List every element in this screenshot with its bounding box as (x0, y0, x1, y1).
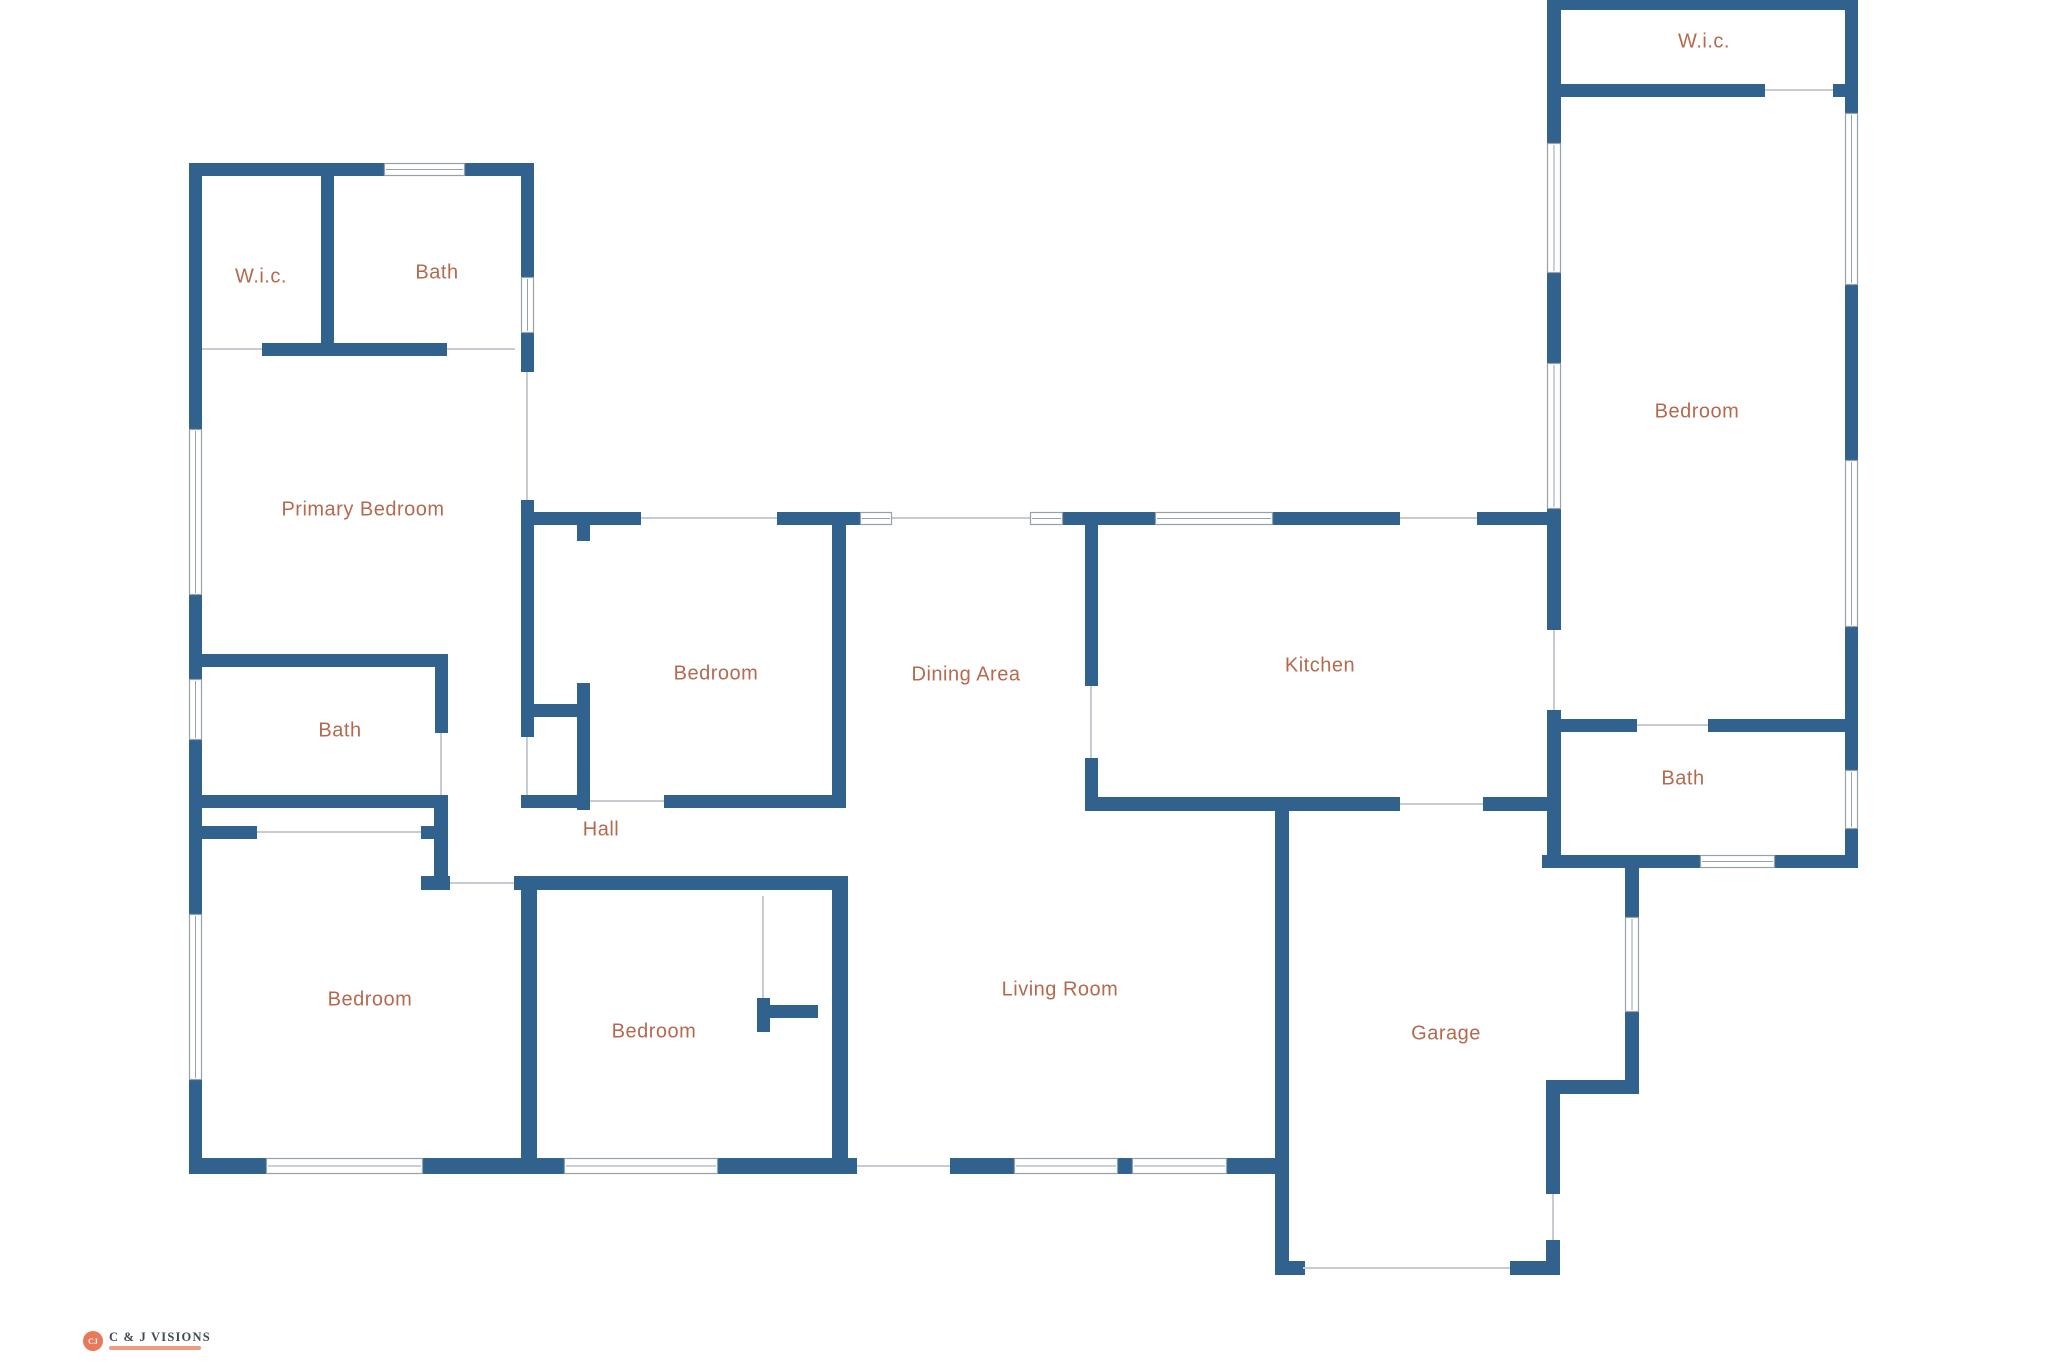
window (1156, 513, 1273, 525)
window (190, 915, 202, 1080)
wall-segment (1547, 509, 1561, 630)
wall-segment (1546, 1094, 1560, 1194)
wall-segment (202, 654, 448, 667)
logo-tagline-strip (109, 1346, 201, 1350)
floorplan-page: W.i.c.BathPrimary BedroomBathHallBedroom… (0, 0, 2048, 1365)
wall-segment (521, 876, 537, 1174)
window (1846, 771, 1858, 829)
wall-segment (1845, 285, 1858, 460)
room-label-primary-bedroom: Primary Bedroom (281, 498, 444, 520)
floorplan-canvas: W.i.c.BathPrimary BedroomBathHallBedroom… (0, 0, 2048, 1365)
logo-mark-icon: CJ (83, 1331, 103, 1351)
wall-segment (757, 998, 770, 1032)
wall-segment (664, 795, 846, 808)
window (1626, 918, 1639, 1012)
wall-segment (770, 1005, 818, 1018)
wall-segment (1289, 1261, 1305, 1275)
wall-segment (1063, 512, 1155, 525)
wall-segment (189, 595, 202, 679)
room-label-hall: Hall (583, 818, 619, 840)
wall-segment (718, 1158, 857, 1174)
window (1031, 513, 1063, 525)
wall-segment (1546, 1240, 1560, 1261)
window (1701, 856, 1775, 868)
wall-segment (832, 525, 846, 808)
wall-segment (1085, 525, 1098, 686)
window (267, 1159, 423, 1174)
wall-segment (1625, 868, 1639, 917)
wall-segment (1547, 0, 1858, 10)
wall-segment (434, 795, 448, 876)
window (1548, 364, 1561, 509)
window (190, 430, 202, 595)
logo-text: C & J VISIONS (109, 1331, 211, 1344)
window (190, 680, 202, 740)
wall-segment (1547, 710, 1561, 868)
wall-segment (435, 667, 448, 733)
wall-segment (421, 876, 450, 890)
wall-segment (189, 163, 384, 176)
room-label-kitchen: Kitchen (1285, 654, 1355, 676)
room-label-dining-area: Dining Area (912, 663, 1021, 685)
wall-segment (1547, 0, 1561, 143)
wall-segment (832, 876, 848, 1174)
wall-segment (321, 176, 334, 343)
wall-segment (534, 704, 577, 717)
wall-segment (262, 343, 447, 356)
room-label-bath-left: Bath (318, 719, 361, 741)
room-label-garage: Garage (1411, 1022, 1481, 1044)
room-label-bedroom-bottom-mid: Bedroom (612, 1020, 697, 1042)
floorplan-svg: W.i.c.BathPrimary BedroomBathHallBedroom… (0, 0, 2048, 1365)
wall-segment (1561, 719, 1637, 732)
wall-segment (521, 333, 534, 372)
window (861, 513, 892, 525)
window (522, 278, 534, 333)
wall-segment (189, 1158, 266, 1174)
window (1548, 144, 1561, 273)
wall-segment (1775, 855, 1858, 868)
wall-segment (1483, 797, 1556, 811)
room-label-wic-upper-right: W.i.c. (1678, 30, 1730, 52)
window (1846, 461, 1858, 627)
wall-segment (202, 795, 443, 808)
wall-segment (1542, 855, 1700, 868)
wall-segment (577, 525, 590, 541)
wall-segment (189, 163, 202, 429)
wall-segment (1510, 1261, 1560, 1275)
wall-segment (1845, 627, 1858, 770)
wall-segment (1708, 719, 1848, 732)
room-label-bedroom-right: Bedroom (1655, 400, 1740, 422)
wall-segment (521, 512, 641, 525)
window (385, 164, 465, 176)
wall-segment (1273, 512, 1400, 525)
window (565, 1159, 718, 1174)
wall-segment (1477, 512, 1556, 525)
wall-segment (577, 683, 590, 810)
wall-segment (521, 500, 534, 737)
wall-segment (1085, 797, 1400, 811)
wall-segment (1118, 1158, 1132, 1174)
wall-segment (1547, 84, 1765, 97)
wall-segment (465, 163, 534, 176)
wall-segment (189, 740, 202, 914)
wall-segment (950, 1158, 1014, 1174)
wall-segment (777, 512, 861, 525)
window (1015, 1159, 1118, 1174)
window (1846, 114, 1858, 285)
room-label-wic-upper-left: W.i.c. (235, 265, 287, 287)
room-label-bath-right: Bath (1661, 767, 1704, 789)
wall-segment (1227, 1158, 1275, 1174)
room-label-bedroom-bottom-left: Bedroom (328, 988, 413, 1010)
wall-segment (521, 176, 534, 277)
room-label-bedroom-mid: Bedroom (674, 662, 759, 684)
wall-segment (1546, 1080, 1639, 1094)
room-label-bath-upper-left: Bath (415, 261, 458, 283)
room-label-living-room: Living Room (1002, 978, 1119, 1000)
wall-segment (423, 1158, 564, 1174)
wall-segment (537, 876, 846, 890)
logo: CJ C & J VISIONS (83, 1331, 211, 1351)
wall-segment (521, 795, 590, 808)
wall-segment (1275, 810, 1289, 1275)
window (1133, 1159, 1227, 1174)
wall-segment (1845, 0, 1858, 113)
wall-segment (202, 826, 257, 839)
wall-segment (1547, 273, 1561, 363)
